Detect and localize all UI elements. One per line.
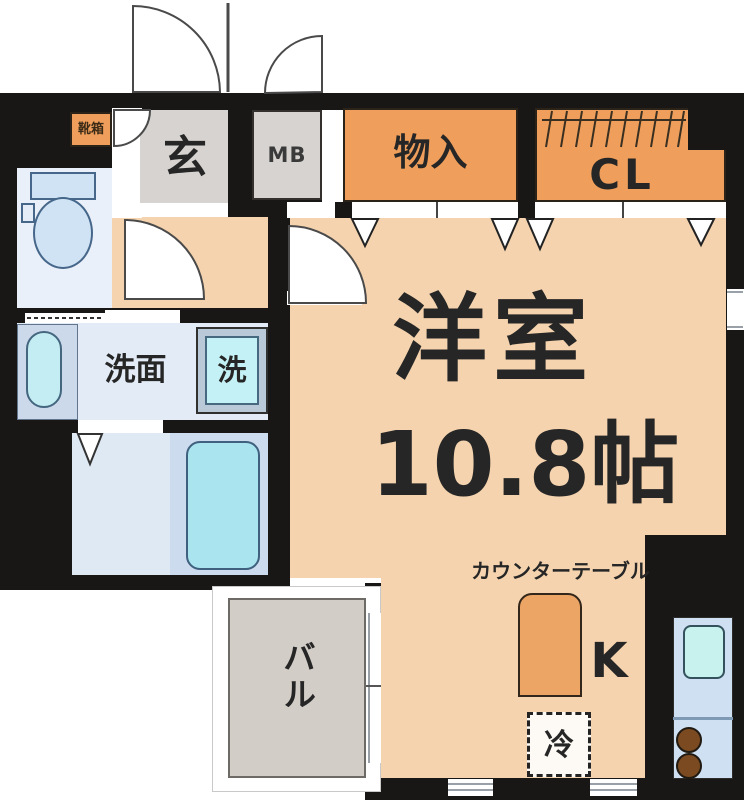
shoebox-door-swing-icon (114, 110, 150, 146)
closet-label: CL (578, 150, 666, 200)
meter-box-label: MB (255, 140, 319, 170)
bath-folding-door-icon (78, 434, 102, 464)
folding-door-mark-icon (688, 219, 714, 245)
refrigerator-label: 冷 (530, 726, 588, 766)
hanger-ticks-icon (546, 111, 684, 147)
mb-door-swing-icon (265, 36, 322, 93)
main-room-size: 10.8帖 (366, 413, 684, 515)
washroom-label: 洗面 (98, 350, 173, 390)
kitchen-label: K (578, 632, 640, 690)
storage-label: 物入 (368, 127, 493, 177)
folding-door-mark-icon (527, 219, 553, 249)
washing-machine-label: 洗 (208, 350, 256, 390)
balcony-label: バル (272, 622, 322, 732)
floor-plan: 玄 MB 靴箱 物入 CL 洋室 10.8帖 洗面 洗 バル カウンターテーブル… (0, 0, 744, 800)
counter-table-label: カウンターテーブル (468, 558, 653, 584)
washroom-door-swing-icon (125, 220, 204, 299)
folding-door-mark-icon (352, 219, 378, 246)
main-room-door-swing-icon (289, 226, 366, 303)
genkan-label: 玄 (150, 130, 220, 185)
folding-door-mark-icon (492, 219, 518, 249)
shoe-box-label: 靴箱 (70, 116, 112, 142)
entrance-door-swing-icon (133, 6, 220, 92)
main-room-name: 洋室 (368, 287, 618, 393)
